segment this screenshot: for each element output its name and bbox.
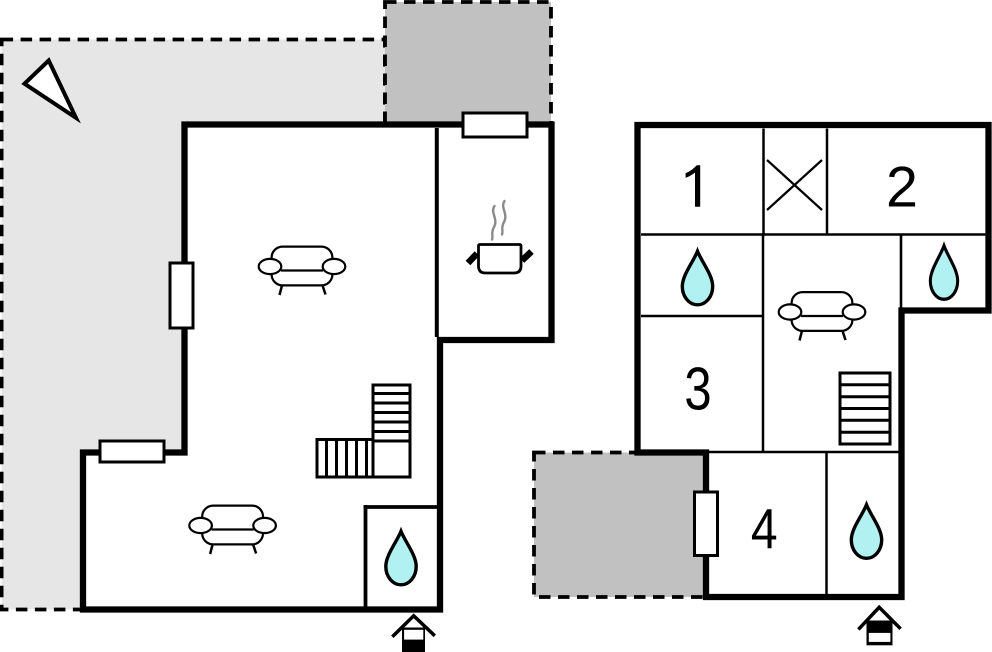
- svg-text:3: 3: [684, 355, 711, 423]
- svg-text:4: 4: [751, 499, 778, 561]
- svg-text:2: 2: [886, 156, 918, 220]
